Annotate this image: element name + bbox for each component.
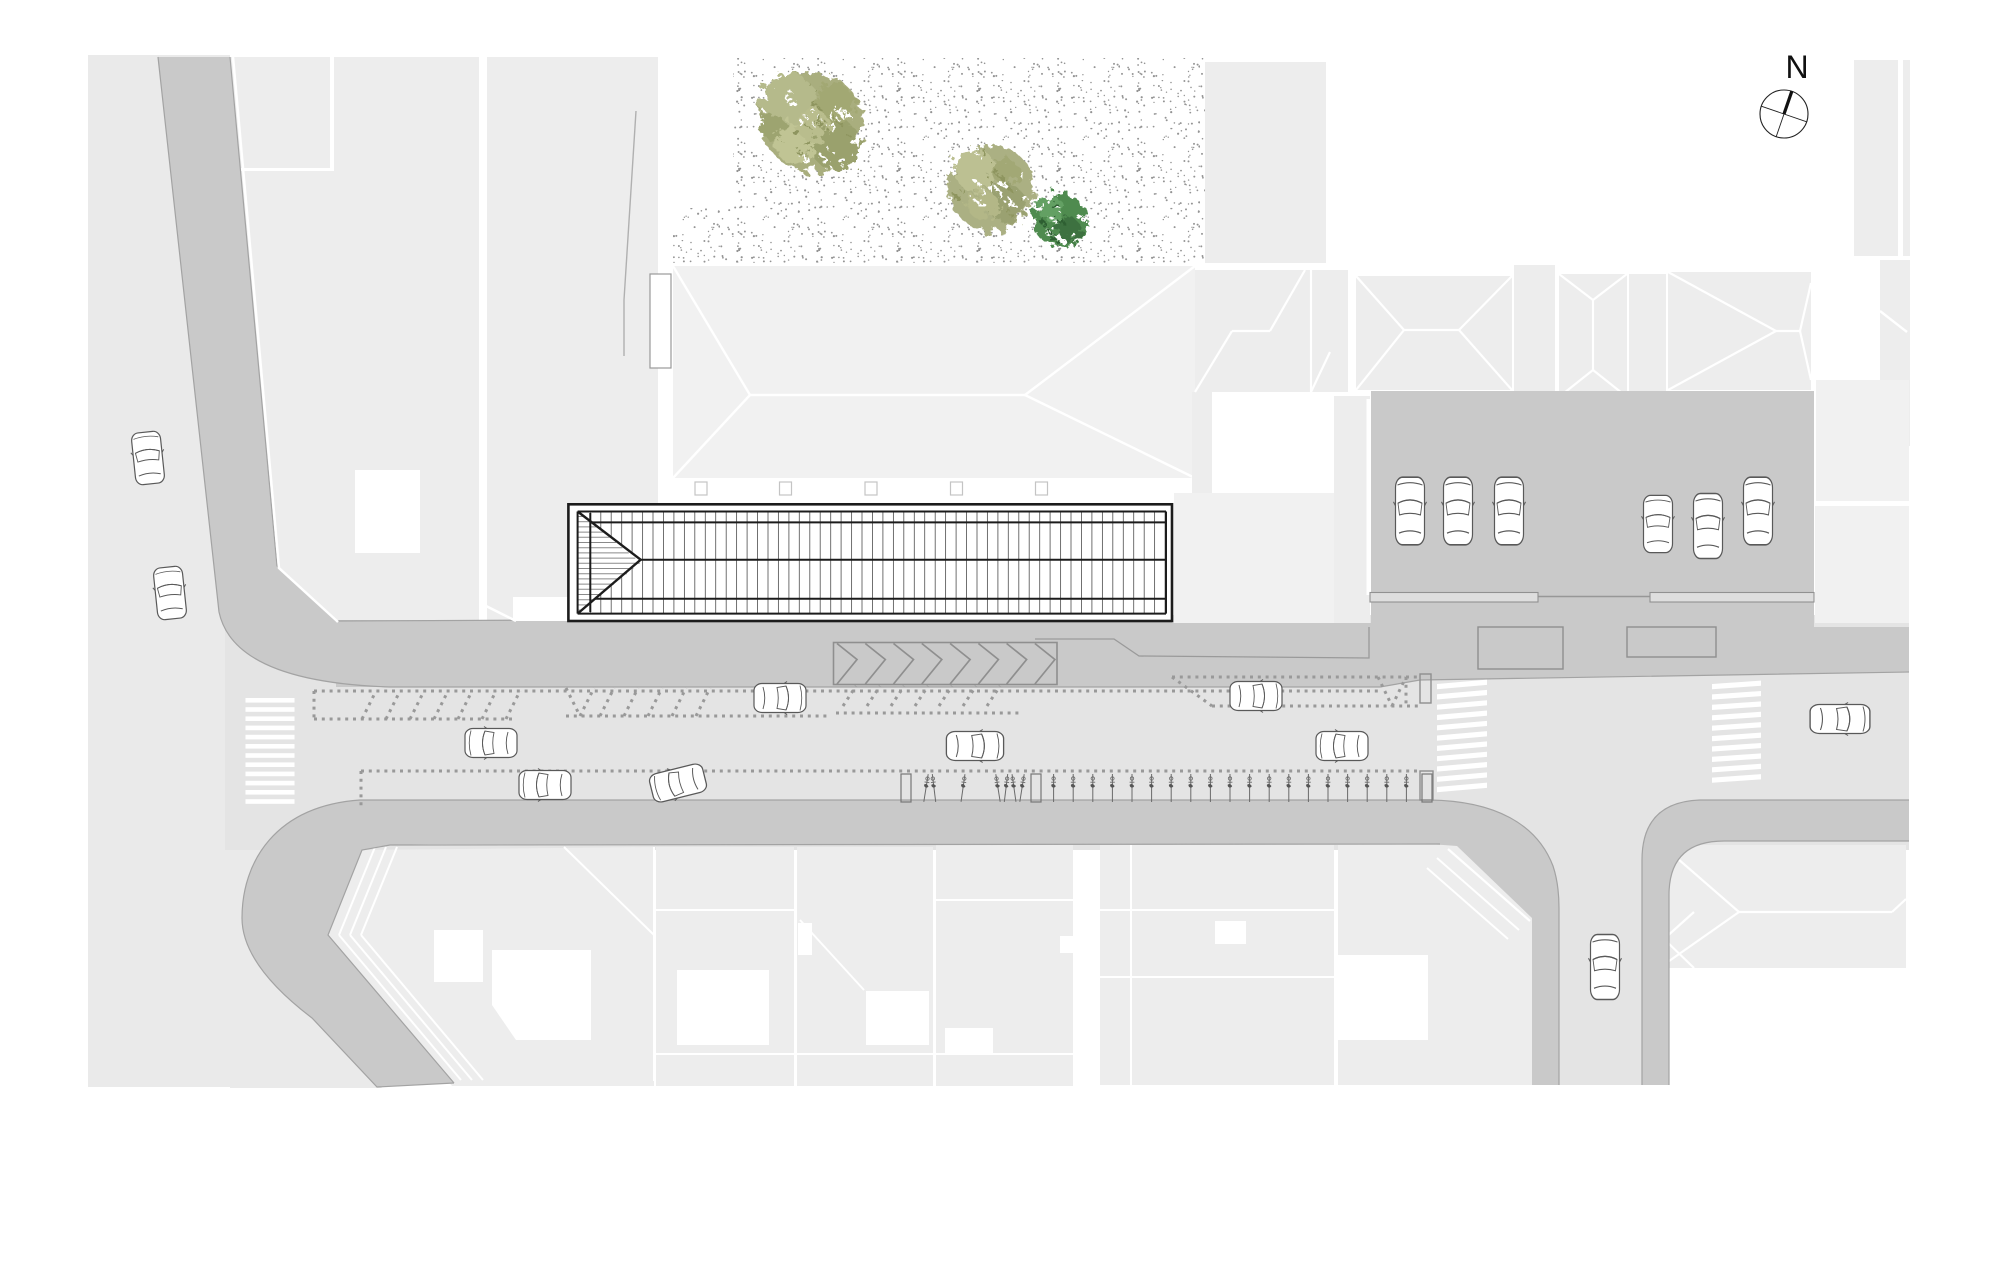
- svg-text:N: N: [1785, 49, 1808, 85]
